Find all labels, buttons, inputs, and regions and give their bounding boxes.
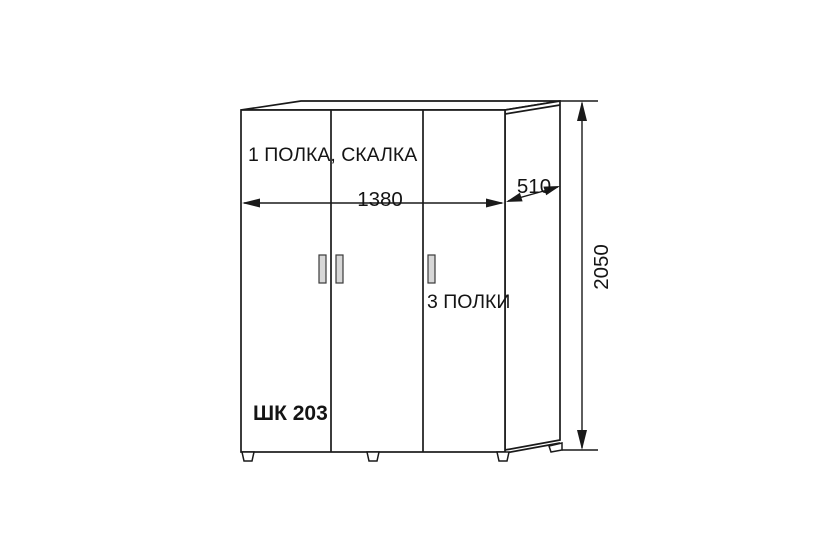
dimension-depth-value: 510: [517, 175, 551, 198]
wardrobe-dimension-drawing: 1380 510 2050 1 ПОЛКА, СКАЛКА 3 ПОЛКИ ШК…: [0, 0, 827, 558]
section-label-shelf-rod: 1 ПОЛКА, СКАЛКА: [248, 144, 417, 166]
dimension-width-value: 1380: [357, 188, 403, 211]
foot-middle: [367, 452, 379, 461]
door-handle-right: [428, 255, 435, 283]
dimension-height-value: 2050: [590, 244, 613, 290]
drawing-canvas: 1380 510 2050 1 ПОЛКА, СКАЛКА 3 ПОЛКИ ШК…: [0, 0, 827, 558]
foot-right: [497, 452, 509, 461]
foot-left: [242, 452, 254, 461]
arrowhead-down-icon: [577, 430, 587, 450]
wardrobe-side-panel: [505, 101, 560, 450]
product-code-label: ШК 203: [253, 402, 328, 425]
door-handle-middle: [336, 255, 343, 283]
dimension-height: 2050: [560, 101, 613, 450]
arrowhead-up-icon: [577, 101, 587, 121]
door-handle-left: [319, 255, 326, 283]
section-label-shelves: 3 ПОЛКИ: [427, 291, 510, 313]
